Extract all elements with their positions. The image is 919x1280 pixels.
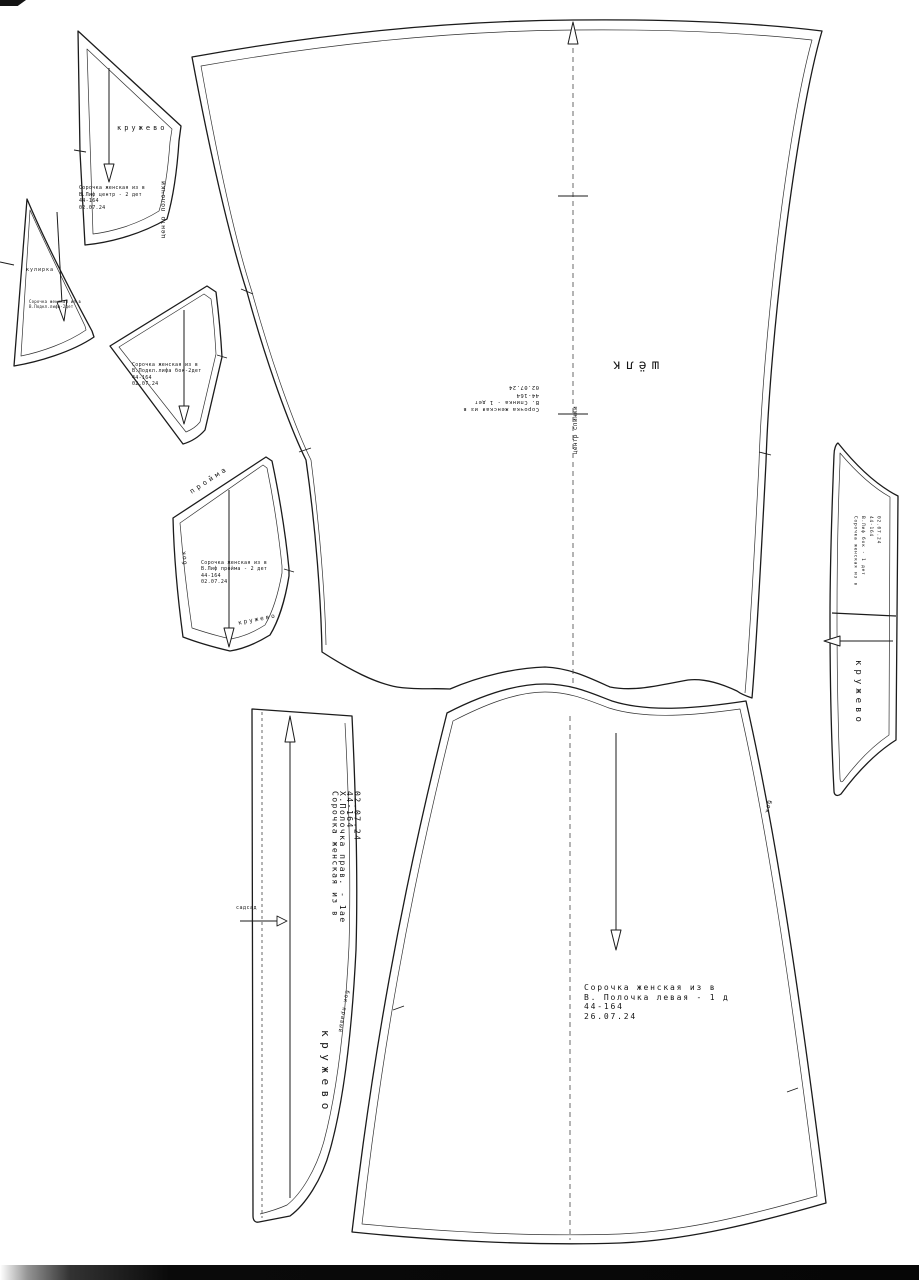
- info-line: В.Подкл.лифа бок-2дет: [132, 368, 202, 374]
- piece-side-band-seamline: [837, 453, 890, 782]
- piece-info-block: Сорочка женская из в В.Лиф пройма - 2 де…: [201, 560, 267, 586]
- fabric-label: кружево: [852, 660, 862, 726]
- piece-info-block: Сорочка женская из в В. Спинка - 1 дет 4…: [455, 383, 539, 412]
- notch-arrowhead-icon: [277, 916, 287, 926]
- info-line: В.Лиф бок - 1 дет: [859, 516, 867, 586]
- info-line: 44-164: [866, 516, 874, 586]
- piece-info-block: Сорочка женская из в В.Подкл.лифа бок-2д…: [132, 362, 202, 388]
- notch-label: садсад: [236, 906, 257, 912]
- divider-line: [832, 613, 896, 616]
- piece-info-block: Сорочка женская из в В.Подкл.лифа-2дет: [29, 300, 81, 310]
- fabric-label: кружево: [117, 125, 168, 133]
- info-line: 44-164: [584, 1002, 730, 1012]
- piece-side-band[interactable]: [824, 443, 898, 795]
- info-line: 02.07.24: [132, 381, 202, 387]
- info-line: 44-164: [79, 198, 145, 205]
- piece-front-right[interactable]: [240, 709, 357, 1222]
- edge-label-side: бок: [181, 550, 189, 565]
- info-line: В. Спинка - 1 дет: [455, 397, 539, 404]
- piece-back-outline[interactable]: [192, 20, 822, 698]
- grainline-arrowhead-icon: [179, 406, 189, 424]
- info-line: Сорочка женская из в: [79, 185, 145, 192]
- info-line: Сорочка женская из в: [455, 405, 539, 412]
- fabric-label: кулирка: [26, 268, 54, 274]
- notch: [787, 1088, 798, 1092]
- info-line: 02.07.24: [455, 383, 539, 390]
- grainline-arrowhead-icon: [568, 22, 578, 44]
- info-line: 26.07.24: [584, 1012, 730, 1022]
- notch: [0, 262, 14, 265]
- info-line: Сорочка женская из в: [584, 983, 730, 993]
- info-line: 02.07.24: [201, 579, 267, 585]
- piece-front-left[interactable]: [352, 684, 826, 1244]
- letterbox-bar: [0, 1265, 919, 1280]
- info-line: В. Полочка левая - 1 д: [584, 993, 730, 1003]
- pattern-layout-canvas[interactable]: кружево центр полочки Сорочка женская из…: [0, 0, 919, 1280]
- piece-front-left-seamline: [362, 692, 817, 1235]
- info-line: В.Лиф центр - 2 дет: [79, 192, 145, 199]
- piece-info-block: Сорочка женская из в В.Лиф центр - 2 дет…: [79, 185, 145, 211]
- piece-back-seamline: [201, 30, 812, 693]
- edge-label-center-front: центр полочки: [160, 156, 167, 238]
- piece-info-block: Сорочка женская из в В.Лиф бок - 1 дет 4…: [851, 516, 881, 586]
- grainline-arrowhead-icon: [285, 716, 295, 742]
- grainline: [57, 212, 62, 303]
- piece-front-right-outline[interactable]: [252, 709, 357, 1222]
- notch: [393, 1006, 404, 1010]
- grainline-arrowhead-icon: [824, 636, 840, 646]
- notch: [759, 452, 771, 455]
- info-line: 02.07.24: [353, 791, 360, 924]
- piece-lining-center[interactable]: [0, 199, 94, 366]
- piece-lining-center-outline[interactable]: [14, 199, 94, 366]
- piece-info-block: Сорочка женская из в Х.Полочка прав. - 1…: [331, 791, 361, 924]
- info-line: В.Подкл.лифа-2дет: [29, 305, 81, 310]
- piece-lining-center-seamline: [21, 210, 86, 356]
- info-line: Сорочка женская из в: [851, 516, 859, 586]
- edge-label-center-back: центр спинки: [573, 406, 580, 454]
- piece-front-left-outline[interactable]: [352, 684, 826, 1244]
- fabric-label: шёлк: [608, 357, 659, 371]
- info-line: 44-164: [455, 390, 539, 397]
- edge-label-side: бок: [763, 799, 772, 814]
- piece-info-block: Сорочка женская из в В. Полочка левая - …: [584, 983, 730, 1021]
- fabric-label: кружево: [319, 1030, 331, 1115]
- grainline-arrowhead-icon: [104, 164, 114, 182]
- info-line: В.Лиф пройма - 2 дет: [201, 566, 267, 572]
- info-line: 02.07.24: [79, 205, 145, 212]
- piece-back[interactable]: [192, 20, 822, 698]
- info-line: 02.07.24: [874, 516, 882, 586]
- grainline-arrowhead-icon: [611, 930, 621, 950]
